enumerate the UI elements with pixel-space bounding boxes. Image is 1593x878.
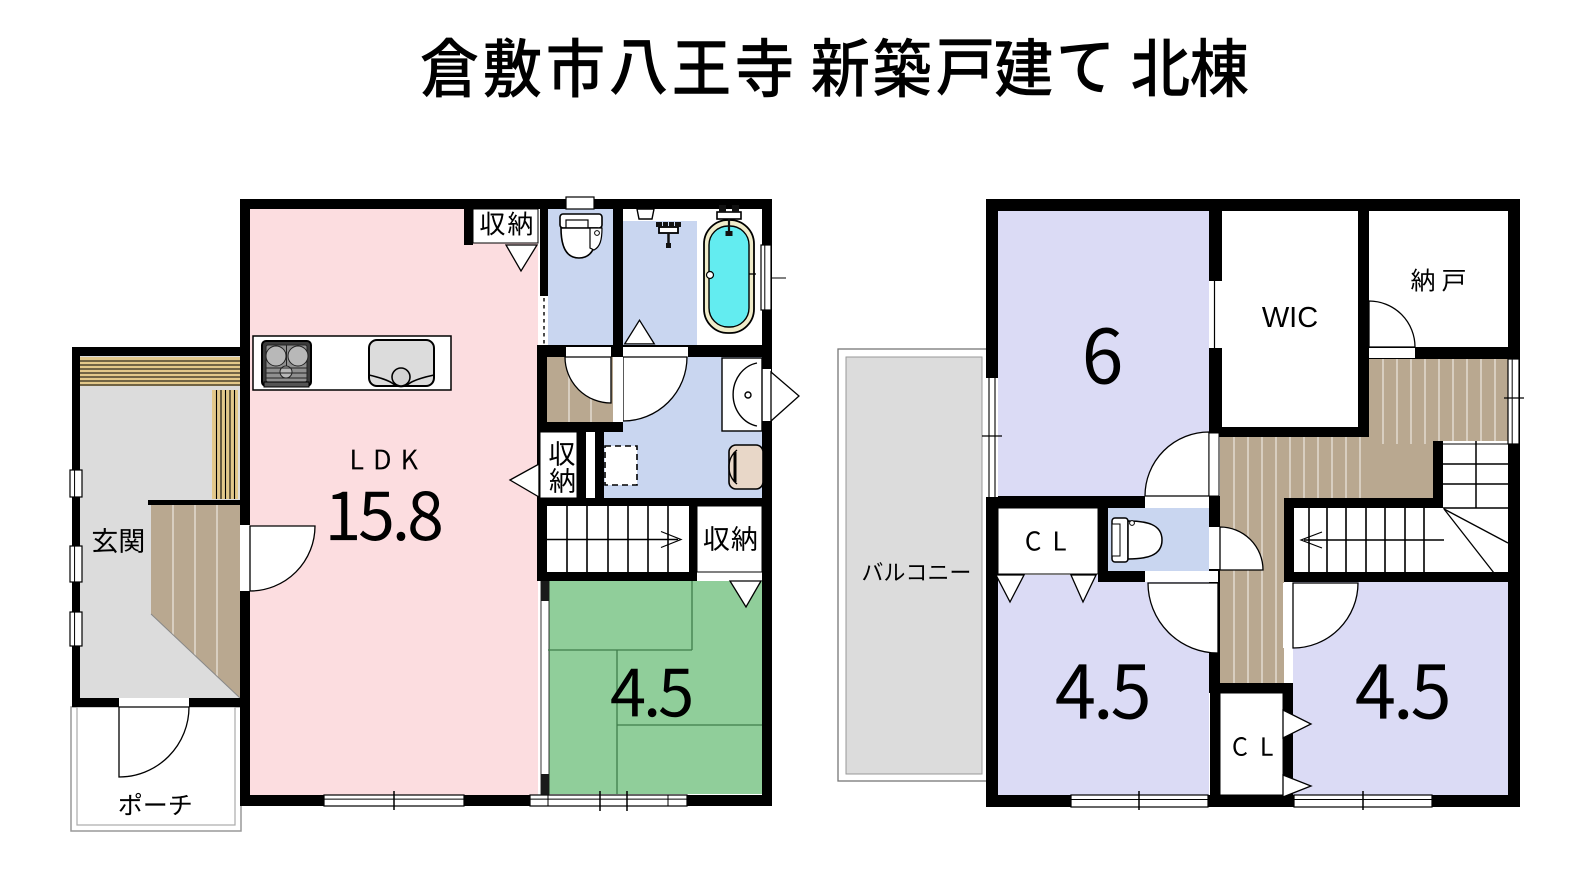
svg-text:WIC: WIC [1262, 302, 1318, 334]
